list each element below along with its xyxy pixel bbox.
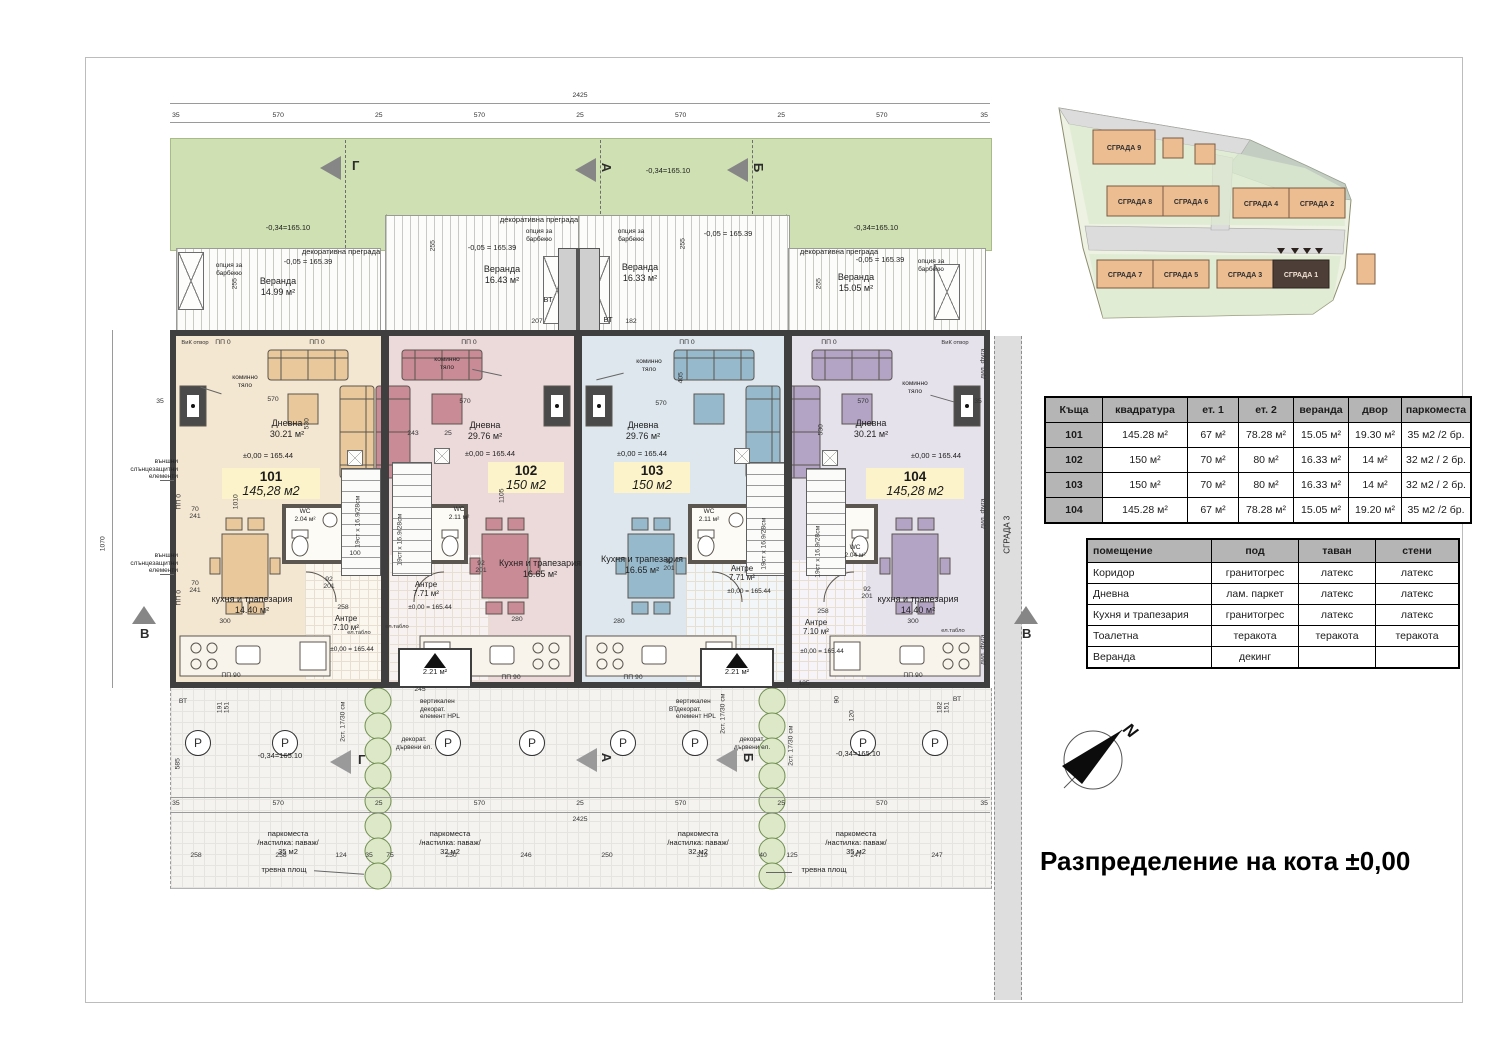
veranda-elev-label: -0,05 = 165.39: [268, 258, 348, 267]
dim-label: 25: [777, 800, 785, 807]
hpl-label: вертикален декорат. елемент HPL: [420, 698, 482, 721]
party-wall: [381, 330, 389, 688]
steps-label: 2ст. 17/30 см: [787, 721, 794, 771]
header-cell: ет. 1: [1188, 397, 1239, 423]
steps-label: 2ст. 17/30 см: [719, 689, 726, 739]
parking-spot: P: [922, 730, 948, 756]
dim-label: 25: [576, 112, 584, 119]
dim-label: 300: [900, 618, 926, 625]
lawn-elev-label: -0,34=165.10: [630, 167, 706, 176]
left-dim-line: [112, 330, 113, 688]
dim-label: 570: [383, 800, 576, 807]
dim-label: 25: [777, 112, 785, 119]
unit-number-box: 103 150 м2: [614, 462, 690, 493]
table-row: Коридор гранитогрес латекс латекс: [1087, 563, 1459, 584]
pp0-label: ПП 0: [676, 339, 698, 346]
dim-label: 570: [260, 396, 286, 403]
table-row: 104 145.28 м² 67 м² 78.28 м² 15.05 м² 19…: [1045, 498, 1471, 524]
stairs-label: 19ст x 16.9/28см: [354, 494, 361, 550]
cell: 15.05 м²: [1294, 498, 1349, 524]
elev-label: ±0,00 = 165.44: [890, 452, 982, 461]
chimney-label: коминно тяло: [420, 356, 474, 371]
dim-label: 35: [968, 398, 988, 405]
cell: 104: [1045, 498, 1103, 524]
hpl-label: вертикален декорат. елемент HPL: [676, 698, 738, 721]
vik-label: ВиК отвор: [938, 340, 972, 346]
cell: 32 м2 / 2 бр.: [1402, 473, 1472, 498]
dim-total-top: 2425: [170, 92, 990, 99]
section-line-a: [600, 140, 601, 214]
cell: Коридор: [1087, 563, 1212, 584]
building3-label: СГРАДА 3: [1002, 480, 1011, 590]
cell: теракота: [1376, 626, 1460, 647]
pp0-label: ПП 0: [818, 339, 840, 346]
site-building-label: СГРАДА 2: [1300, 201, 1334, 208]
dim-label: 35: [978, 112, 990, 119]
cell: 78.28 м²: [1239, 498, 1294, 524]
partition-label: декоративна преграда: [300, 248, 382, 257]
cell: латекс: [1299, 605, 1376, 626]
cell: 150 м²: [1103, 473, 1188, 498]
parking-letter: P: [619, 736, 627, 750]
dim-label: 35: [170, 800, 182, 807]
dim-label: 125: [778, 852, 806, 859]
header-cell: веранда: [1294, 397, 1349, 423]
dim-label: 405: [677, 365, 684, 391]
table-row: Веранда декинг: [1087, 647, 1459, 669]
cell: 145.28 м²: [1103, 498, 1188, 524]
joint-label: дил. фуга: [979, 489, 986, 539]
cell: 15.05 м²: [1294, 423, 1349, 448]
dim-label: 90: [833, 691, 840, 709]
door-dim-label: 92 201: [856, 586, 878, 601]
cell: 80 м²: [1239, 448, 1294, 473]
table-header-row: Къща квадратура ет. 1 ет. 2 веранда двор…: [1045, 397, 1471, 423]
table-row: 101 145.28 м² 67 м² 78.28 м² 15.05 м² 19…: [1045, 423, 1471, 448]
site-building-label: СГРАДА 4: [1244, 201, 1278, 208]
pp90-label: ПП 90: [218, 672, 244, 679]
bbq-label: опция за барбекю: [606, 228, 656, 243]
cell: 16.33 м²: [1294, 473, 1349, 498]
header-cell: паркоместа: [1402, 397, 1472, 423]
bbq-label: опция за барбекю: [514, 228, 564, 243]
dim-label: 245: [408, 686, 432, 693]
parking-letter: P: [444, 736, 452, 750]
table-row: 102 150 м² 70 м² 80 м² 16.33 м² 14 м² 32…: [1045, 448, 1471, 473]
wood-label: декорат. дървени ел.: [386, 736, 442, 751]
partition-label: декоративна преграда: [498, 216, 580, 225]
cell: латекс: [1299, 563, 1376, 584]
section-marker-g-icon: [330, 750, 351, 774]
tree-row: [756, 688, 788, 892]
cell: 70 м²: [1188, 473, 1239, 498]
pp0-label: ПП 0: [212, 339, 234, 346]
north-arrow-icon: N: [1048, 710, 1148, 805]
dim-line: [170, 122, 990, 123]
cell: [1299, 647, 1376, 669]
dim-label: 570: [785, 800, 978, 807]
dim-label: 207: [524, 318, 550, 325]
unit-number: 103: [617, 463, 687, 478]
cell: латекс: [1376, 605, 1460, 626]
pp90-label: ПП 90: [620, 674, 646, 681]
room-label-living: Дневна 30.21 м²: [836, 418, 906, 439]
cell: Кухня и трапезария: [1087, 605, 1212, 626]
dim-label: 246: [511, 852, 541, 859]
dim-label: 247: [841, 852, 871, 859]
dim-label: 182 151: [937, 695, 952, 719]
section-line-g: [345, 140, 346, 248]
elev-label: ±0,00 = 165.44: [444, 450, 536, 459]
cell: 35 м2 /2 бр.: [1402, 498, 1472, 524]
cell: теракота: [1299, 626, 1376, 647]
dim-label: 570: [182, 800, 375, 807]
cell: декинг: [1212, 647, 1299, 669]
unit-area: 145,28 м2: [869, 484, 961, 498]
parking-spot: P: [519, 730, 545, 756]
room-label-kitchen: Кухня и трапезария 16.65 м²: [484, 558, 596, 579]
cell: гранитогрес: [1212, 563, 1299, 584]
lawn-elev-label: -0,34=165.10: [250, 224, 326, 233]
veranda-area-label: Веранда 15.05 м²: [824, 272, 888, 293]
cell: Дневна: [1087, 584, 1212, 605]
room-label-living: Дневна 30.21 м²: [252, 418, 322, 439]
leader-line: [766, 872, 792, 873]
sun-elements-label: външни слънцезащитни елементи: [100, 552, 178, 575]
section-marker-a-icon: [576, 748, 597, 772]
room-label-entry: Антре 7.10 м²: [786, 618, 846, 637]
table-header-row: помещение под таван стени: [1087, 539, 1459, 563]
cell: Тоалетна: [1087, 626, 1212, 647]
vt-label: ВТ: [664, 706, 682, 713]
parking-letter: P: [691, 736, 699, 750]
dim-label: 530: [817, 417, 824, 443]
elev-label: ±0,00 = 165.44: [222, 452, 314, 461]
dim-label: 255: [231, 271, 238, 297]
cell: 80 м²: [1239, 473, 1294, 498]
dim-label: 191 151: [217, 695, 232, 719]
site-building-label: СГРАДА 5: [1164, 272, 1198, 279]
parking-letter: P: [931, 736, 939, 750]
drawing-title: Разпределение на кота ±0,00: [1040, 846, 1460, 877]
dim-label: 70 241: [182, 506, 208, 521]
site-building-label: СГРАДА 7: [1108, 272, 1142, 279]
parking-letter: P: [281, 736, 289, 750]
section-marker-b-label: Б: [741, 753, 756, 762]
pp0-label: ПП 0: [306, 339, 328, 346]
unit-number: 101: [225, 469, 317, 484]
cell: лам. паркет: [1212, 584, 1299, 605]
tree-row: [362, 688, 394, 892]
parking-spot: P: [682, 730, 708, 756]
parking-elev-label: -0,34=165.10: [818, 750, 898, 759]
cell: гранитогрес: [1212, 605, 1299, 626]
bbq-box: [178, 252, 204, 310]
room-label-wc: WC 2.04 м²: [284, 508, 326, 523]
header-cell: таван: [1299, 539, 1376, 563]
dim-label: 280: [504, 616, 530, 623]
dim-label: 570: [785, 112, 978, 119]
parking-elev-label: -0,34=165.10: [240, 752, 320, 761]
unit-number-box: 104 145,28 м2: [866, 468, 964, 499]
dim-label: 255: [429, 233, 436, 259]
site-plan: СГРАДА 9 СГРАДА 8 СГРАДА 6 СГРАДА 4 СГРА…: [1045, 98, 1385, 335]
dim-label: 570: [850, 398, 876, 405]
dim-label: 35: [978, 800, 990, 807]
cell: 19.30 м²: [1349, 423, 1402, 448]
section-marker-b-icon: [727, 158, 748, 182]
dim-label: 300: [212, 618, 238, 625]
table-row: Дневна лам. паркет латекс латекс: [1087, 584, 1459, 605]
section-marker-a-label: А: [599, 163, 614, 172]
elev-label: ±0,00 = 165.44: [390, 604, 470, 612]
cell: 70 м²: [1188, 448, 1239, 473]
elev-label: ±0,00 = 165.44: [596, 450, 688, 459]
header-cell: под: [1212, 539, 1299, 563]
parking-letter: P: [528, 736, 536, 750]
dim-label: 570: [452, 398, 478, 405]
parking-letter: P: [859, 736, 867, 750]
section-marker-b-label: Б: [751, 163, 766, 172]
section-marker-g-icon: [320, 156, 341, 180]
cell: латекс: [1376, 563, 1460, 584]
door-dim-label: 92 201: [318, 576, 340, 591]
section-marker-g-label: Г: [358, 752, 365, 767]
table-row: 103 150 м² 70 м² 80 м² 16.33 м² 14 м² 32…: [1045, 473, 1471, 498]
room-label-wc: WC 2.11 м²: [436, 506, 482, 521]
site-building-label: СГРАДА 6: [1174, 199, 1208, 206]
section-marker-v-icon: [132, 606, 156, 624]
veranda-elev-label: -0,05 = 165.39: [452, 244, 532, 253]
header-cell: Къща: [1045, 397, 1103, 423]
header-cell: двор: [1349, 397, 1402, 423]
entrance-arrow-icon: [726, 653, 748, 668]
vt-label: ВТ: [174, 698, 192, 705]
cell: 103: [1045, 473, 1103, 498]
veranda-area-label: Веранда 16.43 м²: [470, 264, 534, 285]
dim-label: 250: [436, 852, 466, 859]
dim-label: 255: [815, 271, 822, 297]
dim-label: 25: [576, 800, 584, 807]
finishes-table: помещение под таван стени Коридор гранит…: [1086, 538, 1460, 669]
dim-label: 258: [810, 608, 836, 615]
vestibule-core: [576, 248, 580, 330]
veranda-elev-label: -0,05 = 165.39: [688, 230, 768, 239]
dim-label: 570: [648, 400, 674, 407]
dim-row-bottom: 35 570 25 570 25 570 25 570 35: [170, 800, 990, 807]
stairs-label: 19ст x 16.9/28см: [760, 516, 767, 572]
dim-label: 280: [606, 618, 632, 625]
cell: [1376, 647, 1460, 669]
cell: 150 м²: [1103, 448, 1188, 473]
dim-label: 1010: [232, 488, 239, 516]
room-label-living: Дневна 29.76 м²: [450, 420, 520, 441]
room-label-entry: Антре 7.71 м²: [396, 580, 456, 599]
chimney-label: коминно тяло: [218, 374, 272, 389]
grass-label: тревна площ: [252, 866, 316, 875]
elev-label: ±0,00 = 165.44: [312, 646, 392, 654]
dim-label: 100: [342, 550, 368, 557]
chimney-label: коминно тяло: [622, 358, 676, 373]
cell: 19.20 м²: [1349, 498, 1402, 524]
dim-label: 25: [375, 800, 383, 807]
dim-row-top: 35 570 25 570 25 570 25 570 35: [170, 112, 990, 119]
joint-label: дил. фуга: [979, 625, 986, 675]
dim-label: 570: [584, 800, 777, 807]
header-cell: стени: [1376, 539, 1460, 563]
cell: латекс: [1376, 584, 1460, 605]
dim-label: 124: [326, 852, 356, 859]
section-marker-a-label: А: [599, 753, 614, 762]
vt-label: ВТ: [538, 296, 558, 305]
lawn-elev-label: -0,34=165.10: [838, 224, 914, 233]
elev-label: ±0,00 = 165.44: [706, 588, 792, 596]
site-building-label: СГРАДА 9: [1107, 145, 1141, 152]
header-cell: квадратура: [1103, 397, 1188, 423]
dim-label: 120: [848, 706, 855, 726]
bbq-label: опция за барбекю: [906, 258, 956, 273]
dim-label: 530: [303, 411, 310, 437]
cell: 67 м²: [1188, 498, 1239, 524]
header-cell: ет. 2: [1239, 397, 1294, 423]
cell: 32 м2 / 2 бр.: [1402, 448, 1472, 473]
dim-label: 585: [174, 752, 181, 776]
cell: 67 м²: [1188, 423, 1239, 448]
joint-label: дил. фуга: [979, 339, 986, 389]
unit-number: 104: [869, 469, 961, 484]
unit-number: 102: [491, 463, 561, 478]
dim-label: 75: [377, 852, 403, 859]
dim-label: 125: [792, 680, 816, 687]
door-dim-label: 92 201: [470, 560, 492, 575]
building3-strip: [994, 336, 1022, 1000]
dim-line: [170, 812, 990, 813]
dim-label: 250: [592, 852, 622, 859]
section-marker-v-icon: [1014, 606, 1038, 624]
table-row: Тоалетна теракота теракота теракота: [1087, 626, 1459, 647]
board-label: ел.табло: [938, 628, 968, 634]
cell: 102: [1045, 448, 1103, 473]
parking-spot: P: [185, 730, 211, 756]
dim-label: 40: [750, 852, 776, 859]
board-label: ел.табло: [344, 630, 374, 636]
veranda-area-label: Веранда 14.99 м²: [246, 276, 310, 297]
cell: 35 м2 /2 бр.: [1402, 423, 1472, 448]
section-marker-a-icon: [575, 158, 596, 182]
section-marker-v-label: В: [140, 626, 149, 641]
dim-label: 35: [170, 112, 182, 119]
sun-elements-label: външни слънцезащитни елементи: [100, 458, 178, 481]
grass-label: тревна площ: [792, 866, 856, 875]
board-label: ел.табло: [382, 624, 412, 630]
dim-label: 258: [266, 852, 296, 859]
dim-label: 1105: [498, 482, 505, 510]
entrance-arrow-icon: [424, 653, 446, 668]
room-label-kitchen: кухня и трапезария 14.40 м²: [862, 594, 974, 615]
dim-line: [170, 797, 990, 798]
dim-label: 182: [618, 318, 644, 325]
room-label-living: Дневна 29.76 м²: [608, 420, 678, 441]
pp90-label: ПП 90: [900, 672, 926, 679]
dim-label: 255: [679, 231, 686, 257]
dim-label: 243: [400, 430, 426, 437]
dim-line: [170, 103, 990, 104]
cell: теракота: [1212, 626, 1299, 647]
steps-label: 2ст. 17/30 см: [339, 697, 346, 747]
drawing-sheet: 2425 35 570 25 570 25 570 25 570 35 Г А …: [0, 0, 1500, 1060]
dim-total-bottom: 2425: [170, 816, 990, 823]
leader-line: [160, 480, 174, 481]
unit-area: 150 м2: [617, 478, 687, 492]
north-letter: N: [1119, 719, 1141, 742]
section-line-b: [752, 140, 753, 214]
dim-label: 570: [383, 112, 576, 119]
porch-area-label: 2.21 м²: [725, 668, 749, 677]
cell: 14 м²: [1349, 473, 1402, 498]
dim-label: 35: [150, 398, 170, 405]
areas-table: Къща квадратура ет. 1 ет. 2 веранда двор…: [1044, 396, 1472, 524]
site-building-label: СГРАДА 3: [1228, 272, 1262, 279]
porch-102: 2.21 м²: [398, 648, 472, 688]
chimney-label: коминно тяло: [888, 380, 942, 395]
dim-label: 70 241: [182, 580, 208, 595]
party-wall: [574, 330, 582, 688]
elev-label: ±0,00 = 165.44: [782, 648, 862, 656]
parking-letter: P: [194, 736, 202, 750]
dim-label: 570: [182, 112, 375, 119]
dim-label: 258: [330, 604, 356, 611]
pp0-label: ПП 0: [458, 339, 480, 346]
partition-label: декоративна преграда: [798, 248, 880, 257]
room-label-kitchen: кухня и трапезария 14.40 м²: [196, 594, 308, 615]
dim-label: 319: [687, 852, 717, 859]
cell: 101: [1045, 423, 1103, 448]
section-marker-g-label: Г: [352, 158, 359, 173]
dim-label: 258: [181, 852, 211, 859]
dim-label: 25: [375, 112, 383, 119]
door-dim-label: 92 201: [658, 558, 680, 573]
site-building-label: СГРАДА 8: [1118, 199, 1152, 206]
porch-103: 2.21 м²: [700, 648, 774, 688]
table-row: Кухня и трапезария гранитогрес латекс ла…: [1087, 605, 1459, 626]
stairs-label: 19ст x 16.9/28см: [814, 524, 821, 580]
section-marker-b-icon: [716, 748, 737, 772]
veranda-area-label: Веранда 16.33 м²: [608, 262, 672, 283]
dim-label: 570: [584, 112, 777, 119]
dim-label: 25: [438, 430, 458, 437]
porch-area-label: 2.21 м²: [423, 668, 447, 677]
header-cell: помещение: [1087, 539, 1212, 563]
room-label-wc: WC 2.04 м²: [832, 544, 878, 559]
stairs-label: 19ст x 16.9/28см: [396, 512, 403, 568]
dim-label: 247: [922, 852, 952, 859]
cell: 16.33 м²: [1294, 448, 1349, 473]
cell: латекс: [1299, 584, 1376, 605]
room-label-wc: WC 2.11 м²: [686, 508, 732, 523]
cell: Веранда: [1087, 647, 1212, 669]
cell: 145.28 м²: [1103, 423, 1188, 448]
section-marker-v-label: В: [1022, 626, 1031, 641]
vik-label: ВиК отвор: [178, 340, 212, 346]
room-label-kitchen: Кухня и трапезария 16.65 м²: [586, 554, 698, 575]
cell: 14 м²: [1349, 448, 1402, 473]
pp90-label: ПП 90: [498, 674, 524, 681]
leader-line: [160, 574, 174, 575]
cell: 78.28 м²: [1239, 423, 1294, 448]
vt-label: ВТ: [598, 316, 618, 325]
site-building-label-highlight: СГРАДА 1: [1284, 272, 1318, 279]
